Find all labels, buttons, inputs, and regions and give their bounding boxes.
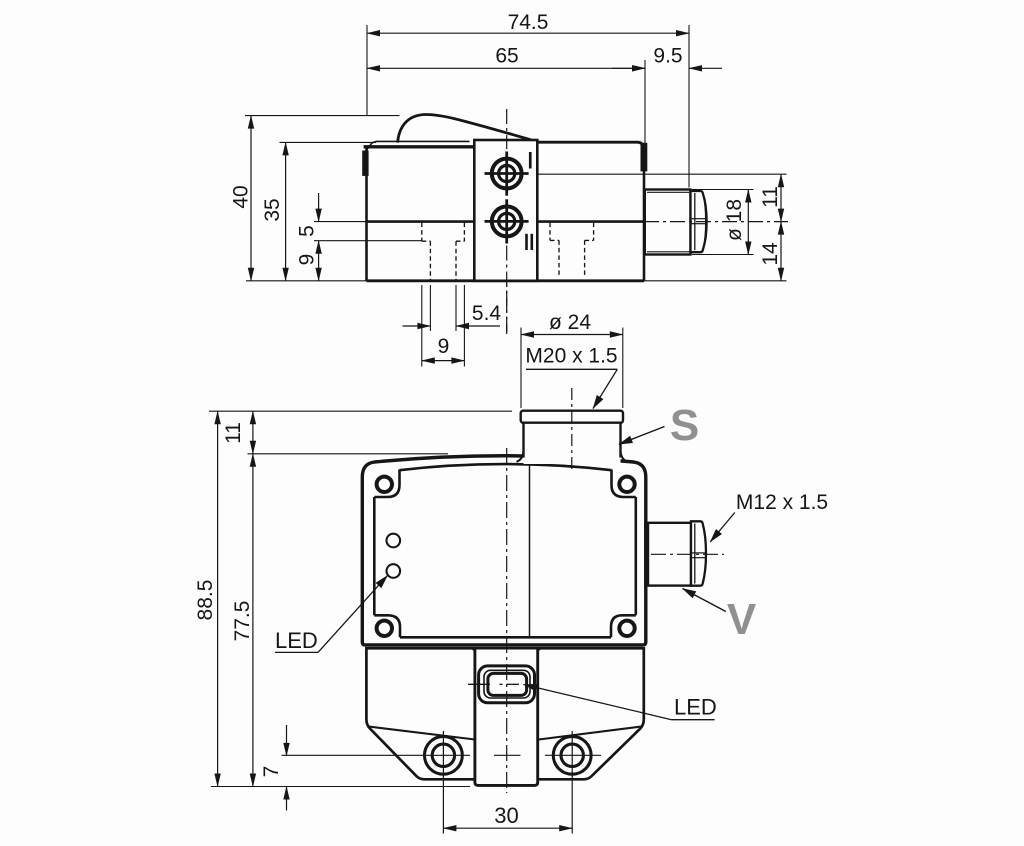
svg-text:65: 65 — [495, 45, 518, 68]
svg-text:V: V — [727, 595, 757, 644]
svg-text:9: 9 — [296, 254, 319, 266]
svg-text:ø 24: ø 24 — [549, 311, 591, 334]
svg-text:M12 x 1.5: M12 x 1.5 — [736, 491, 828, 514]
svg-text:9.5: 9.5 — [653, 45, 682, 68]
svg-text:35: 35 — [261, 198, 284, 221]
svg-text:11: 11 — [222, 422, 245, 444]
svg-text:M20 x 1.5: M20 x 1.5 — [525, 345, 617, 368]
svg-text:77.5: 77.5 — [231, 601, 254, 642]
svg-text:ø 18: ø 18 — [723, 199, 746, 241]
svg-text:7: 7 — [260, 766, 283, 778]
svg-text:40: 40 — [230, 185, 253, 208]
svg-text:11: 11 — [759, 186, 782, 208]
svg-text:5.4: 5.4 — [472, 302, 502, 325]
svg-text:88.5: 88.5 — [194, 580, 217, 621]
svg-text:LED: LED — [275, 628, 318, 653]
svg-text:74.5: 74.5 — [508, 11, 549, 34]
svg-text:LED: LED — [674, 695, 717, 720]
svg-text:14: 14 — [759, 242, 782, 266]
svg-text:30: 30 — [494, 803, 518, 828]
svg-text:9: 9 — [438, 335, 450, 358]
svg-text:S: S — [670, 401, 699, 450]
svg-text:5: 5 — [296, 225, 319, 237]
